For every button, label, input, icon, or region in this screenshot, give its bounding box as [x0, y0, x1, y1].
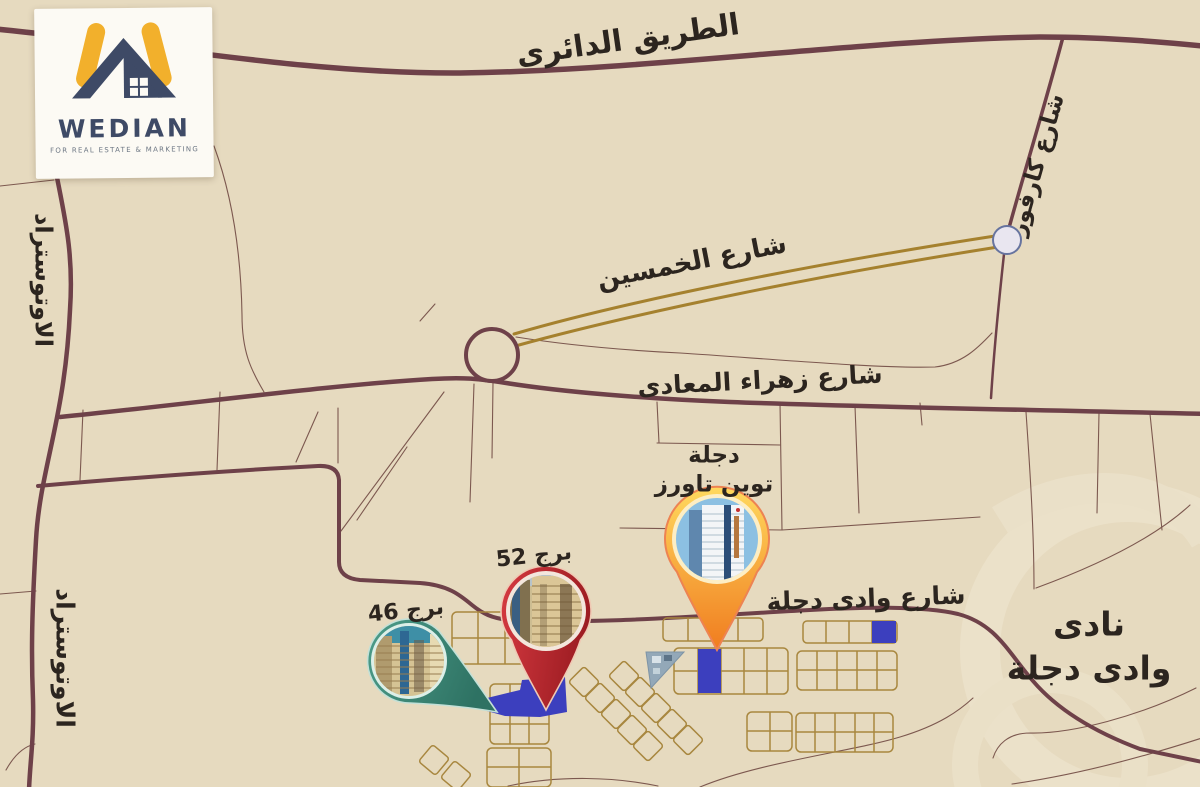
brand-name: WEDIAN	[58, 113, 191, 143]
label-wadi-degla-club: نادى وادى دجلة	[1007, 602, 1172, 689]
map-stage: الطريق الدائرى شارع كارفور شارع الخمسين …	[0, 0, 1200, 787]
club-label-line2: وادى دجلة	[1007, 646, 1172, 690]
blue-parcel-east	[872, 621, 896, 643]
label-autostrad-upper: الاوتوستراد	[27, 213, 58, 347]
logo-card: WEDIAN FOR REAL ESTATE & MARKETING	[34, 7, 214, 179]
label-wadi-degla-street: شارع وادى دجلة	[766, 579, 966, 618]
label-degla-twin-towers: دجلة توين تاورز	[655, 441, 773, 499]
club-label-line1: نادى	[1007, 602, 1172, 646]
carrefour-line-lower	[991, 254, 1004, 398]
twin-towers-label-line2: توين تاورز	[655, 470, 773, 499]
aerial-photo-patch	[646, 652, 684, 688]
map-pin-degla-twin-towers[interactable]	[665, 487, 769, 650]
brand-tagline: FOR REAL ESTATE & MARKETING	[50, 145, 199, 155]
tower-46-photo	[374, 626, 444, 696]
roundabout	[466, 329, 518, 381]
twin-towers-label-line1: دجلة	[655, 441, 773, 470]
map-pin-tower-52[interactable]	[501, 566, 591, 710]
zahraa-el-maadi-line	[60, 378, 1200, 417]
wedian-logo-icon	[63, 19, 184, 112]
twin-towers-footprint	[698, 649, 721, 693]
label-autostrad-lower: الاوتوستراد	[48, 588, 81, 728]
